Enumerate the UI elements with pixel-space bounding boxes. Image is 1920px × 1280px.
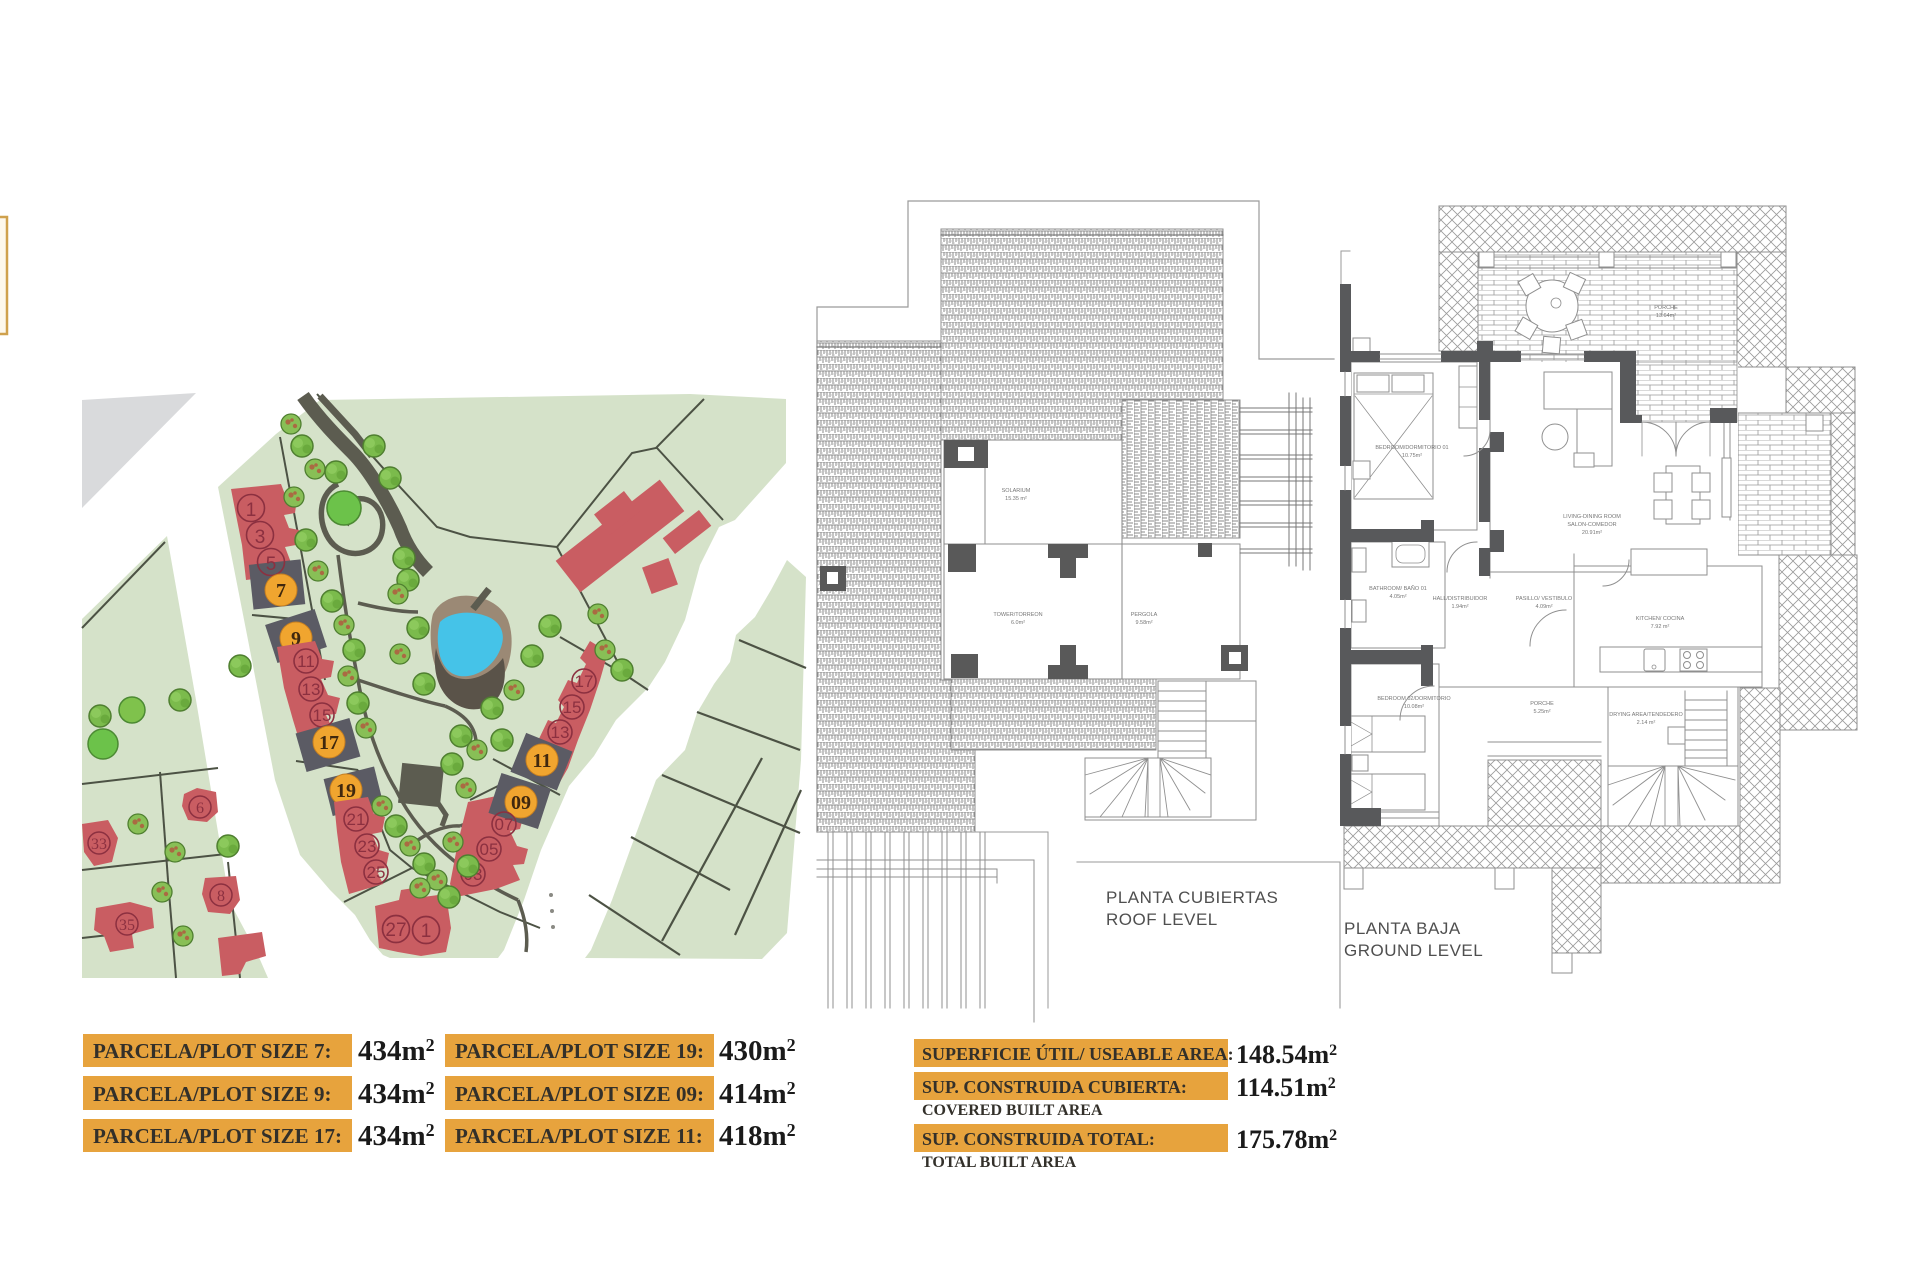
svg-text:PLANTA BAJA: PLANTA BAJA xyxy=(1344,919,1461,938)
svg-text:15: 15 xyxy=(313,706,332,725)
svg-text:PARCELA/PLOT SIZE 7:: PARCELA/PLOT SIZE 7: xyxy=(93,1039,331,1063)
svg-text:07: 07 xyxy=(495,815,514,834)
svg-text:1: 1 xyxy=(246,500,257,521)
svg-text:434m2: 434m2 xyxy=(358,1078,435,1110)
svg-text:5: 5 xyxy=(266,554,277,575)
svg-text:11: 11 xyxy=(297,652,315,671)
svg-text:PORCHE: PORCHE xyxy=(1654,305,1678,311)
svg-text:17: 17 xyxy=(319,732,339,754)
svg-text:7: 7 xyxy=(276,580,286,602)
svg-text:1.94m²: 1.94m² xyxy=(1451,604,1468,610)
svg-text:ROOF LEVEL: ROOF LEVEL xyxy=(1106,910,1218,929)
svg-text:175.78m2: 175.78m2 xyxy=(1236,1125,1337,1154)
svg-text:434m2: 434m2 xyxy=(358,1035,435,1067)
svg-text:05: 05 xyxy=(480,840,499,859)
svg-text:430m2: 430m2 xyxy=(719,1035,796,1067)
svg-text:21: 21 xyxy=(347,810,366,829)
svg-text:PASILLO/ VESTIBULO: PASILLO/ VESTIBULO xyxy=(1516,596,1573,602)
svg-text:BEDROOM 02/DORMITORIO: BEDROOM 02/DORMITORIO xyxy=(1377,696,1451,702)
svg-text:8: 8 xyxy=(217,888,225,905)
svg-text:SOLARIUM: SOLARIUM xyxy=(1002,488,1031,494)
svg-text:KITCHEN/ COCINA: KITCHEN/ COCINA xyxy=(1636,616,1685,622)
svg-text:PARCELA/PLOT SIZE 19:: PARCELA/PLOT SIZE 19: xyxy=(455,1039,704,1063)
svg-text:PARCELA/PLOT SIZE 17:: PARCELA/PLOT SIZE 17: xyxy=(93,1124,342,1148)
svg-text:BEDROOM/DORMITORIO 01: BEDROOM/DORMITORIO 01 xyxy=(1375,445,1448,451)
svg-text:13.64m²: 13.64m² xyxy=(1656,313,1676,319)
svg-text:BATHROOM/ BAÑO 01: BATHROOM/ BAÑO 01 xyxy=(1369,585,1427,592)
svg-text:09: 09 xyxy=(511,792,531,814)
svg-text:PARCELA/PLOT SIZE 9:: PARCELA/PLOT SIZE 9: xyxy=(93,1082,331,1106)
svg-text:10.75m²: 10.75m² xyxy=(1402,453,1422,459)
svg-text:4.05m²: 4.05m² xyxy=(1389,594,1406,600)
svg-text:13: 13 xyxy=(302,680,321,699)
svg-text:20.91m²: 20.91m² xyxy=(1582,530,1602,536)
svg-text:PLANTA CUBIERTAS: PLANTA CUBIERTAS xyxy=(1106,888,1278,907)
svg-text:PORCHE: PORCHE xyxy=(1530,701,1554,707)
svg-text:LIVING-DINING ROOM: LIVING-DINING ROOM xyxy=(1563,514,1621,520)
svg-text:GROUND LEVEL: GROUND LEVEL xyxy=(1344,941,1483,960)
svg-text:SUP. CONSTRUIDA CUBIERTA:: SUP. CONSTRUIDA CUBIERTA: xyxy=(922,1077,1187,1097)
svg-text:27: 27 xyxy=(385,920,406,941)
svg-text:4.09m²: 4.09m² xyxy=(1535,604,1552,610)
svg-text:6: 6 xyxy=(196,800,204,817)
svg-text:TOTAL BUILT AREA: TOTAL BUILT AREA xyxy=(922,1154,1077,1171)
svg-text:23: 23 xyxy=(358,837,377,856)
svg-text:25: 25 xyxy=(367,863,386,882)
svg-text:35: 35 xyxy=(119,917,135,934)
svg-text:DRYING AREA/TENDEDERO: DRYING AREA/TENDEDERO xyxy=(1609,712,1683,718)
svg-text:19: 19 xyxy=(336,780,356,802)
svg-text:148.54m2: 148.54m2 xyxy=(1236,1040,1337,1069)
svg-text:SALON-COMEDOR: SALON-COMEDOR xyxy=(1567,522,1616,528)
svg-text:PARCELA/PLOT SIZE 11:: PARCELA/PLOT SIZE 11: xyxy=(455,1124,703,1148)
svg-text:2.14 m²: 2.14 m² xyxy=(1637,720,1656,726)
svg-text:TOWER/TORREON: TOWER/TORREON xyxy=(993,612,1042,618)
svg-text:SUP. CONSTRUIDA TOTAL:: SUP. CONSTRUIDA TOTAL: xyxy=(922,1129,1155,1149)
svg-text:33: 33 xyxy=(91,836,107,853)
svg-text:6.0m²: 6.0m² xyxy=(1011,620,1025,626)
svg-text:434m2: 434m2 xyxy=(358,1120,435,1152)
svg-text:7.92 m²: 7.92 m² xyxy=(1651,624,1670,630)
svg-text:COVERED BUILT AREA: COVERED BUILT AREA xyxy=(922,1102,1103,1119)
svg-text:PERGOLA: PERGOLA xyxy=(1131,612,1158,618)
svg-text:17: 17 xyxy=(575,672,594,691)
svg-text:9.58m²: 9.58m² xyxy=(1135,620,1152,626)
svg-text:11: 11 xyxy=(533,750,552,772)
svg-text:PARCELA/PLOT SIZE 09:: PARCELA/PLOT SIZE 09: xyxy=(455,1082,704,1106)
svg-text:SUPERFICIE ÚTIL/ USEABLE AREA:: SUPERFICIE ÚTIL/ USEABLE AREA: xyxy=(922,1043,1234,1064)
svg-text:3: 3 xyxy=(255,527,266,548)
svg-text:418m2: 418m2 xyxy=(719,1120,796,1152)
svg-text:414m2: 414m2 xyxy=(719,1078,796,1110)
svg-text:15.35 m²: 15.35 m² xyxy=(1005,496,1027,502)
svg-text:5.25m²: 5.25m² xyxy=(1533,709,1550,715)
svg-text:13: 13 xyxy=(551,723,570,742)
svg-text:1: 1 xyxy=(421,921,432,942)
svg-text:15: 15 xyxy=(563,698,582,717)
svg-text:10.08m²: 10.08m² xyxy=(1404,704,1424,710)
svg-text:HALL/DISTRIBUIDOR: HALL/DISTRIBUIDOR xyxy=(1433,596,1488,602)
svg-text:114.51m2: 114.51m2 xyxy=(1236,1073,1336,1102)
